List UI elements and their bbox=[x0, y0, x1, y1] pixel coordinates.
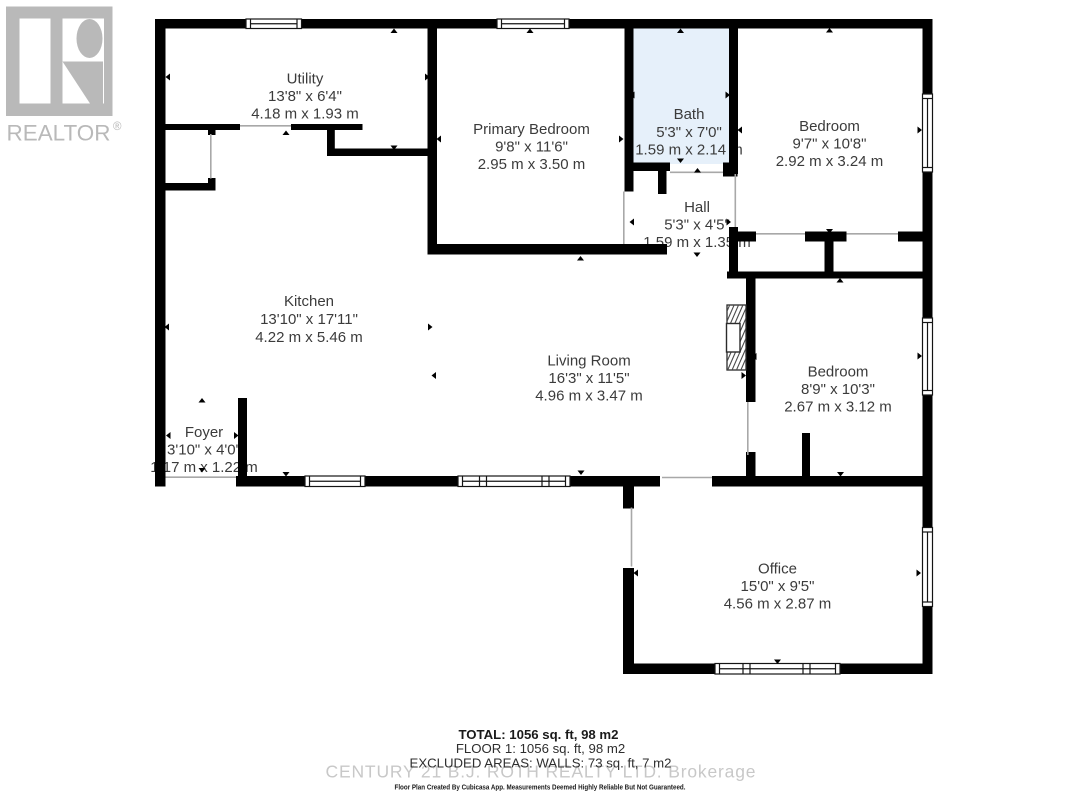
svg-text:2.92 m x 3.24 m: 2.92 m x 3.24 m bbox=[776, 153, 884, 170]
svg-text:EXCLUDED AREAS: WALLS: 73 sq.: EXCLUDED AREAS: WALLS: 73 sq. ft, 7 m2 bbox=[410, 755, 672, 770]
svg-text:TOTAL: 1056 sq. ft, 98 m2: TOTAL: 1056 sq. ft, 98 m2 bbox=[458, 727, 618, 742]
svg-text:Primary Bedroom: Primary Bedroom bbox=[473, 121, 590, 138]
svg-text:Foyer: Foyer bbox=[185, 424, 223, 441]
svg-text:9'8" x 11'6": 9'8" x 11'6" bbox=[495, 138, 568, 155]
svg-text:13'10" x 17'11": 13'10" x 17'11" bbox=[260, 311, 358, 328]
svg-text:REALTOR: REALTOR bbox=[7, 121, 111, 146]
svg-text:®: ® bbox=[113, 121, 122, 133]
svg-text:Office: Office bbox=[758, 560, 797, 577]
svg-text:Bath: Bath bbox=[674, 106, 705, 123]
svg-text:2.67 m x 3.12 m: 2.67 m x 3.12 m bbox=[784, 398, 892, 415]
svg-text:Hall: Hall bbox=[684, 199, 710, 216]
svg-text:16'3" x 11'5": 16'3" x 11'5" bbox=[548, 370, 629, 387]
svg-text:9'7" x 10'8": 9'7" x 10'8" bbox=[793, 135, 867, 152]
svg-text:FLOOR 1: 1056 sq. ft, 98 m2: FLOOR 1: 1056 sq. ft, 98 m2 bbox=[456, 741, 625, 756]
svg-text:4.96 m x 3.47 m: 4.96 m x 3.47 m bbox=[535, 387, 643, 404]
svg-text:8'9" x 10'3": 8'9" x 10'3" bbox=[801, 381, 875, 398]
svg-text:13'8" x 6'4": 13'8" x 6'4" bbox=[268, 88, 342, 105]
svg-text:15'0" x 9'5": 15'0" x 9'5" bbox=[741, 578, 815, 595]
svg-text:2.95 m x 3.50 m: 2.95 m x 3.50 m bbox=[478, 156, 586, 173]
svg-text:3'10" x 4'0": 3'10" x 4'0" bbox=[167, 441, 241, 458]
svg-text:Kitchen: Kitchen bbox=[284, 293, 334, 310]
svg-text:Utility: Utility bbox=[287, 70, 324, 87]
svg-text:Floor Plan Created By Cubicasa: Floor Plan Created By Cubicasa App. Meas… bbox=[395, 783, 686, 792]
svg-text:4.22 m x 5.46 m: 4.22 m x 5.46 m bbox=[255, 329, 363, 346]
svg-text:Bedroom: Bedroom bbox=[808, 363, 869, 380]
svg-text:1.59 m x 2.14 m: 1.59 m x 2.14 m bbox=[635, 141, 743, 158]
svg-text:5'3" x 4'5": 5'3" x 4'5" bbox=[664, 216, 730, 233]
svg-text:5'3" x 7'0": 5'3" x 7'0" bbox=[656, 124, 722, 141]
svg-text:4.56 m x 2.87 m: 4.56 m x 2.87 m bbox=[724, 595, 832, 612]
svg-text:Bedroom: Bedroom bbox=[799, 118, 860, 135]
svg-text:Living Room: Living Room bbox=[547, 352, 630, 369]
svg-text:4.18 m x 1.93 m: 4.18 m x 1.93 m bbox=[251, 105, 359, 122]
